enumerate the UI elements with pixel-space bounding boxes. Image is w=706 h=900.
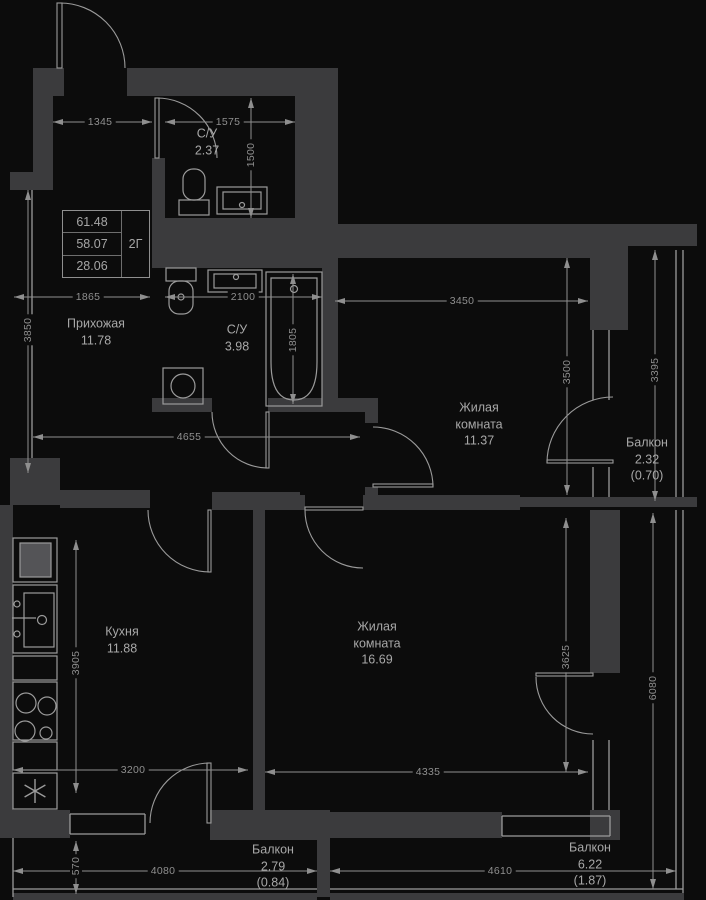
- room-name: Жилая комната: [344, 618, 410, 651]
- area-info-box: 61.48 58.07 28.06 2Г: [62, 210, 150, 278]
- kitchen-fixtures: [12, 538, 57, 809]
- dim-top-bath-width: 1575: [213, 116, 244, 128]
- room-name: Кухня: [105, 624, 138, 641]
- room-name: Жилая комната: [446, 399, 512, 432]
- room-area: 11.78: [67, 332, 125, 349]
- floor-area: 58.07: [63, 233, 121, 255]
- room-label-living-1: Жилая комната 11.37: [446, 399, 512, 449]
- room-area-reduced: (0.70): [626, 467, 668, 484]
- dim-hallway-width: 1865: [73, 291, 104, 303]
- dim-balcony2-depth: 570: [70, 854, 82, 878]
- floor-plan-drawing: [0, 0, 706, 900]
- dim-balcony3-height: 6080: [647, 673, 659, 704]
- dim-hallway-height: 3850: [22, 315, 34, 346]
- room-label-bath-small: С/У 2.37: [195, 126, 219, 159]
- floor-plan: 61.48 58.07 28.06 2Г Прихожая 11.78 С/У …: [0, 0, 706, 900]
- dim-entry-wall: 1345: [85, 116, 116, 128]
- dim-living2-height: 3625: [560, 642, 572, 673]
- snowflake-icon: [25, 779, 46, 803]
- dim-bath-width: 2100: [228, 291, 259, 303]
- dim-living2-width: 4335: [413, 766, 444, 778]
- dim-bathtub-length: 1805: [287, 325, 299, 356]
- area-values: 61.48 58.07 28.06: [63, 211, 121, 277]
- dim-kitchen-height: 3905: [70, 648, 82, 679]
- room-name: Балкон: [626, 434, 668, 451]
- dim-balcony2-width: 4080: [148, 865, 179, 877]
- room-area: 16.69: [344, 651, 410, 668]
- dim-kitchen-width: 3200: [118, 764, 149, 776]
- room-name: Балкон: [252, 841, 294, 858]
- dim-hallway-length: 4655: [174, 431, 205, 443]
- room-area-reduced: (0.84): [252, 874, 294, 891]
- total-area: 61.48: [63, 211, 121, 233]
- room-area-reduced: (1.87): [569, 872, 611, 889]
- dim-living1-width: 3450: [447, 295, 478, 307]
- room-area: 2.37: [195, 142, 219, 159]
- room-area: 11.37: [446, 432, 512, 449]
- room-label-living-2: Жилая комната 16.69: [344, 618, 410, 668]
- room-label-hallway: Прихожая 11.78: [67, 316, 125, 349]
- room-label-balcony-3: Балкон 6.22 (1.87): [569, 839, 611, 889]
- room-label-kitchen: Кухня 11.88: [105, 624, 138, 657]
- room-area: 11.88: [105, 640, 138, 657]
- dim-top-bath-height: 1500: [245, 140, 257, 171]
- room-area: 3.98: [225, 338, 249, 355]
- dim-balcony3-width: 4610: [485, 865, 516, 877]
- room-label-bath: С/У 3.98: [225, 322, 249, 355]
- apartment-type: 2Г: [121, 211, 149, 277]
- room-label-balcony-2: Балкон 2.79 (0.84): [252, 841, 294, 891]
- windows-and-railings: [13, 190, 683, 897]
- room-area: 6.22: [569, 856, 611, 873]
- dim-living1-height: 3500: [561, 357, 573, 388]
- room-area: 2.79: [252, 858, 294, 875]
- room-name: Балкон: [569, 839, 611, 856]
- room-name: Прихожая: [67, 316, 125, 333]
- dim-balcony1-height: 3395: [649, 355, 661, 386]
- living-area: 28.06: [63, 256, 121, 277]
- room-area: 2.32: [626, 451, 668, 468]
- room-name: С/У: [225, 322, 249, 339]
- room-label-balcony-1: Балкон 2.32 (0.70): [626, 434, 668, 484]
